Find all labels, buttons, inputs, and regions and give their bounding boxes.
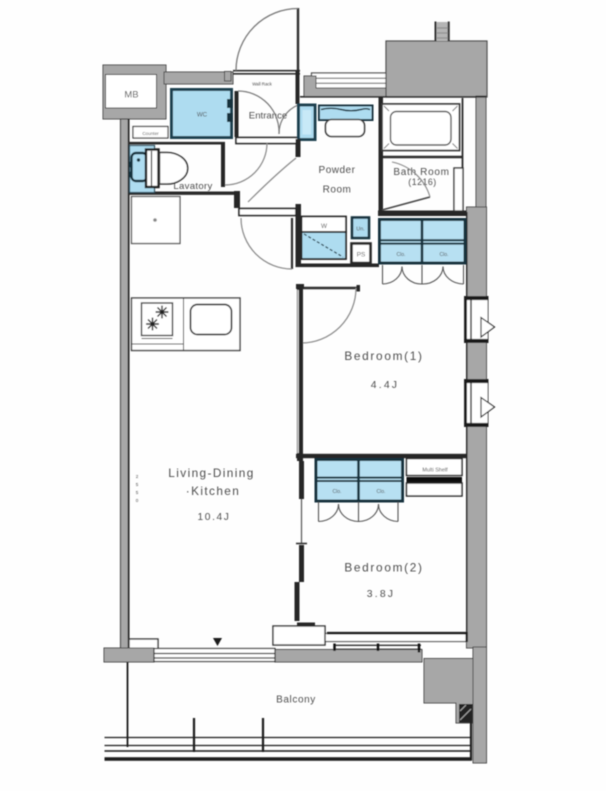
svg-text:Living-Dining: Living-Dining (168, 466, 254, 480)
svg-text:W: W (321, 223, 328, 230)
svg-text:4.4J: 4.4J (371, 380, 399, 391)
svg-text:Counter: Counter (142, 131, 159, 136)
svg-text:Clo.: Clo. (397, 252, 406, 258)
svg-text:5: 5 (136, 482, 139, 487)
svg-text:2: 2 (136, 474, 139, 479)
svg-text:10.4J: 10.4J (198, 512, 231, 523)
svg-text:Entrance: Entrance (249, 110, 287, 121)
svg-text:MB: MB (124, 90, 138, 101)
svg-text:Room: Room (323, 184, 352, 195)
svg-text:0: 0 (136, 498, 139, 503)
svg-text:Clo.: Clo. (440, 252, 449, 258)
svg-text:WC: WC (197, 112, 208, 119)
svg-text:PS: PS (357, 252, 366, 259)
svg-text:Clo.: Clo. (377, 489, 386, 495)
svg-text:·Kitchen: ·Kitchen (186, 484, 240, 498)
svg-text:Wall Rack: Wall Rack (252, 82, 272, 87)
svg-text:Un.: Un. (356, 227, 364, 233)
svg-text:Bath Room: Bath Room (393, 167, 449, 178)
svg-text:Bedroom(1): Bedroom(1) (344, 349, 423, 363)
svg-text:Bedroom(2): Bedroom(2) (344, 561, 423, 575)
svg-text:3.8J: 3.8J (367, 589, 395, 600)
svg-text:Powder: Powder (319, 165, 356, 176)
svg-text:Multi Shelf: Multi Shelf (422, 467, 448, 473)
svg-text:5: 5 (136, 490, 139, 495)
svg-text:Clo.: Clo. (333, 489, 342, 495)
svg-text:Balcony: Balcony (276, 695, 316, 706)
svg-text:Lavatory: Lavatory (173, 181, 212, 192)
